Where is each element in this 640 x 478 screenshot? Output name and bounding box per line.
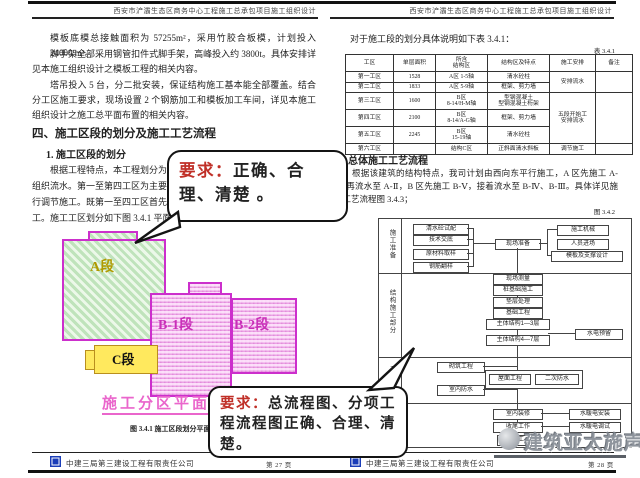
zone-b1-shape bbox=[150, 293, 232, 397]
flow-box: 主体结构1—3层 bbox=[486, 319, 550, 330]
col-header: 备注 bbox=[596, 55, 633, 72]
cell: 1600 bbox=[394, 93, 436, 110]
right-header-rule bbox=[330, 17, 614, 19]
zone-b2-shape bbox=[231, 298, 297, 374]
connector bbox=[483, 366, 517, 367]
flow-box: 人员进场 bbox=[557, 239, 609, 250]
slide-canvas: 西安市浐灞生态区商务中心工程施工总承包项目施工组织设计 模板底模总接触面积为 5… bbox=[0, 0, 640, 478]
flow-box: 技术交底 bbox=[413, 235, 469, 246]
connector bbox=[467, 253, 473, 254]
overall-process-flowchart: 施工准备 结构施工部分 二次结构 装饰装修 清水砼试配 技术交底 原材料取样 钢… bbox=[378, 218, 632, 448]
cell: 清水砼柱 bbox=[488, 127, 550, 144]
flow-box: 基础工程 bbox=[493, 308, 543, 319]
cell-note bbox=[596, 93, 633, 144]
col-header: 工区 bbox=[346, 55, 394, 72]
cell: B区 8-14/H-M轴 bbox=[436, 93, 488, 110]
flow-box: 水电预留 bbox=[575, 329, 623, 340]
cell: 第五工区 bbox=[346, 127, 394, 144]
flow-box: 现场测量 bbox=[493, 274, 543, 285]
subsection-heading-1: 1. 施工区段的划分 bbox=[46, 146, 126, 161]
flow-box: 主体结构4—7层 bbox=[486, 335, 550, 346]
table-row: 第三工区 1600 B区 8-14/H-M轴 型钢混凝土 型钢混凝土桁架 五段开… bbox=[346, 93, 633, 110]
cell-merged: 五段开始工 安排流水 bbox=[550, 93, 596, 144]
flow-box: 施工机械 bbox=[557, 225, 609, 236]
flowchart-section-label: 结构施工部分 bbox=[386, 289, 396, 334]
col-header: 结构区及特点 bbox=[488, 55, 550, 72]
flow-box: 原材料取样 bbox=[413, 249, 469, 260]
cscec-logo-icon bbox=[50, 456, 61, 467]
right-heading-2: 2. 总体施工工艺流程 bbox=[338, 152, 428, 167]
top-border-line bbox=[28, 1, 616, 4]
flow-box: 室内装修 bbox=[493, 409, 543, 420]
connector bbox=[483, 389, 517, 390]
flow-box: 垫层处理 bbox=[493, 297, 543, 308]
cell: 清水砼柱 bbox=[488, 72, 550, 83]
cell-merged: 安排流水 bbox=[550, 72, 596, 93]
callout-2-prefix: 要求： bbox=[220, 396, 268, 412]
watermark-badge-icon bbox=[498, 428, 520, 450]
section-heading-4: 四、施工区段的划分及施工工艺流程 bbox=[32, 125, 216, 141]
zone-table: 工区 单层面积 所含 结构区 结构区及特点 施工安排 备注 第一工区 1528 … bbox=[345, 54, 633, 155]
cell-note bbox=[596, 144, 633, 155]
flowchart-section-label: 施工准备 bbox=[386, 229, 396, 259]
flow-box: 二次防水 bbox=[535, 374, 579, 385]
cell: B区 15-19轴 bbox=[436, 127, 488, 144]
left-footer-company: 中建三局第三建设工程有限责任公司 bbox=[66, 458, 194, 469]
cell: 型钢混凝土 型钢混凝土桁架 bbox=[488, 93, 550, 110]
flow-box: 清水砼试配 bbox=[413, 224, 469, 235]
flow-box: 屋面工程 bbox=[489, 374, 531, 385]
table-row: 第一工区 1528 A区 1-5轴 清水砼柱 安排流水 bbox=[346, 72, 633, 83]
callout-requirement-1: 要求：正确、合理、清楚 。 bbox=[167, 150, 348, 222]
connector bbox=[473, 228, 474, 267]
connector bbox=[539, 243, 547, 244]
left-header-rule bbox=[32, 17, 318, 19]
cell-note bbox=[596, 72, 633, 93]
left-footer-page-number: 第 27 页 bbox=[266, 459, 292, 469]
zone-b2-label: B-2段 bbox=[234, 314, 269, 334]
connector bbox=[547, 229, 557, 230]
cell: 第四工区 bbox=[346, 110, 394, 127]
left-page-header: 西安市浐灞生态区商务中心工程施工总承包项目施工组织设计 bbox=[40, 6, 316, 16]
connector bbox=[467, 239, 473, 240]
cell: 第二工区 bbox=[346, 82, 394, 93]
zone-c-label: C段 bbox=[112, 349, 134, 368]
cell: 框架、剪力墙 bbox=[488, 110, 550, 127]
zone-b1-label: B-1段 bbox=[158, 314, 193, 334]
right-footer-company: 中建三局第三建设工程有限责任公司 bbox=[366, 458, 494, 469]
watermark: 建筑亚太施声 bbox=[488, 424, 638, 460]
cell: 1833 bbox=[394, 82, 436, 93]
connector bbox=[473, 243, 495, 244]
cell: 框架、剪力墙 bbox=[488, 82, 550, 93]
left-paragraph-3: 塔吊投入 5 台，分二批安装，保证结构施工基本能全部覆盖。结合分工区施工要求，现… bbox=[32, 78, 316, 123]
connector bbox=[541, 413, 569, 414]
right-page-header: 西安市浐灞生态区商务中心工程施工总承包项目施工组织设计 bbox=[332, 6, 612, 16]
cell: 1528 bbox=[394, 72, 436, 83]
callout-requirement-2: 要求：总流程图、分项工程流程图正确、合理、清楚。 bbox=[208, 386, 408, 458]
col-header: 单层面积 bbox=[394, 55, 436, 72]
cell: A区 5-9轴 bbox=[436, 82, 488, 93]
figure-342-label: 图 3.4.2 bbox=[545, 206, 615, 216]
cell: A区 1-5轴 bbox=[436, 72, 488, 83]
cell: 结构C区 bbox=[436, 144, 488, 155]
watermark-underline bbox=[494, 455, 626, 458]
cell: 第三工区 bbox=[346, 93, 394, 110]
cell: 第一工区 bbox=[346, 72, 394, 83]
left-paragraph-2: 脚手架全部采用钢管扣件式脚手架，高峰投入约 3800t。具体安排详见本施工组织设… bbox=[32, 47, 316, 77]
flow-box: 水暖电安装 bbox=[569, 409, 621, 420]
connector bbox=[547, 255, 551, 256]
flow-box: 砌筑工程 bbox=[437, 362, 485, 373]
callout-1-prefix: 要求： bbox=[179, 161, 233, 180]
cell: 2100 bbox=[394, 110, 436, 127]
flowchart-section-divider bbox=[379, 403, 631, 404]
right-paragraph: 根据该建筑的结构特点，我司计划由西向东平行施工，A 区先施工 A-Ⅰ，再流水至 … bbox=[334, 167, 618, 206]
watermark-text: 建筑亚太施声 bbox=[524, 428, 640, 455]
connector bbox=[547, 229, 548, 255]
cell: B区 8-14/A-G轴 bbox=[436, 110, 488, 127]
bottom-border-line bbox=[28, 470, 616, 473]
connector bbox=[548, 333, 575, 334]
connector bbox=[467, 266, 473, 267]
cell: 正斜面清水斜板 bbox=[488, 144, 550, 155]
flow-box: 室内防水 bbox=[437, 385, 485, 396]
col-header: 施工安排 bbox=[550, 55, 596, 72]
flow-box: 桩基础施工 bbox=[493, 285, 543, 296]
flow-box: 现场准备 bbox=[495, 239, 541, 250]
connector bbox=[467, 228, 473, 229]
flow-box: 钢筋翻样 bbox=[413, 262, 469, 273]
flow-box: 模板及支撑设计 bbox=[551, 251, 623, 262]
right-footer-page-number: 第 28 页 bbox=[588, 459, 614, 469]
cell-merged: 调节施工 bbox=[550, 144, 596, 155]
col-header: 所含 结构区 bbox=[436, 55, 488, 72]
table-header-row: 工区 单层面积 所含 结构区 结构区及特点 施工安排 备注 bbox=[346, 55, 633, 72]
callout-1-tail bbox=[132, 210, 184, 246]
callout-2-tail bbox=[364, 346, 418, 392]
cell: 2245 bbox=[394, 127, 436, 144]
zone-a-label: A段 bbox=[90, 256, 114, 276]
